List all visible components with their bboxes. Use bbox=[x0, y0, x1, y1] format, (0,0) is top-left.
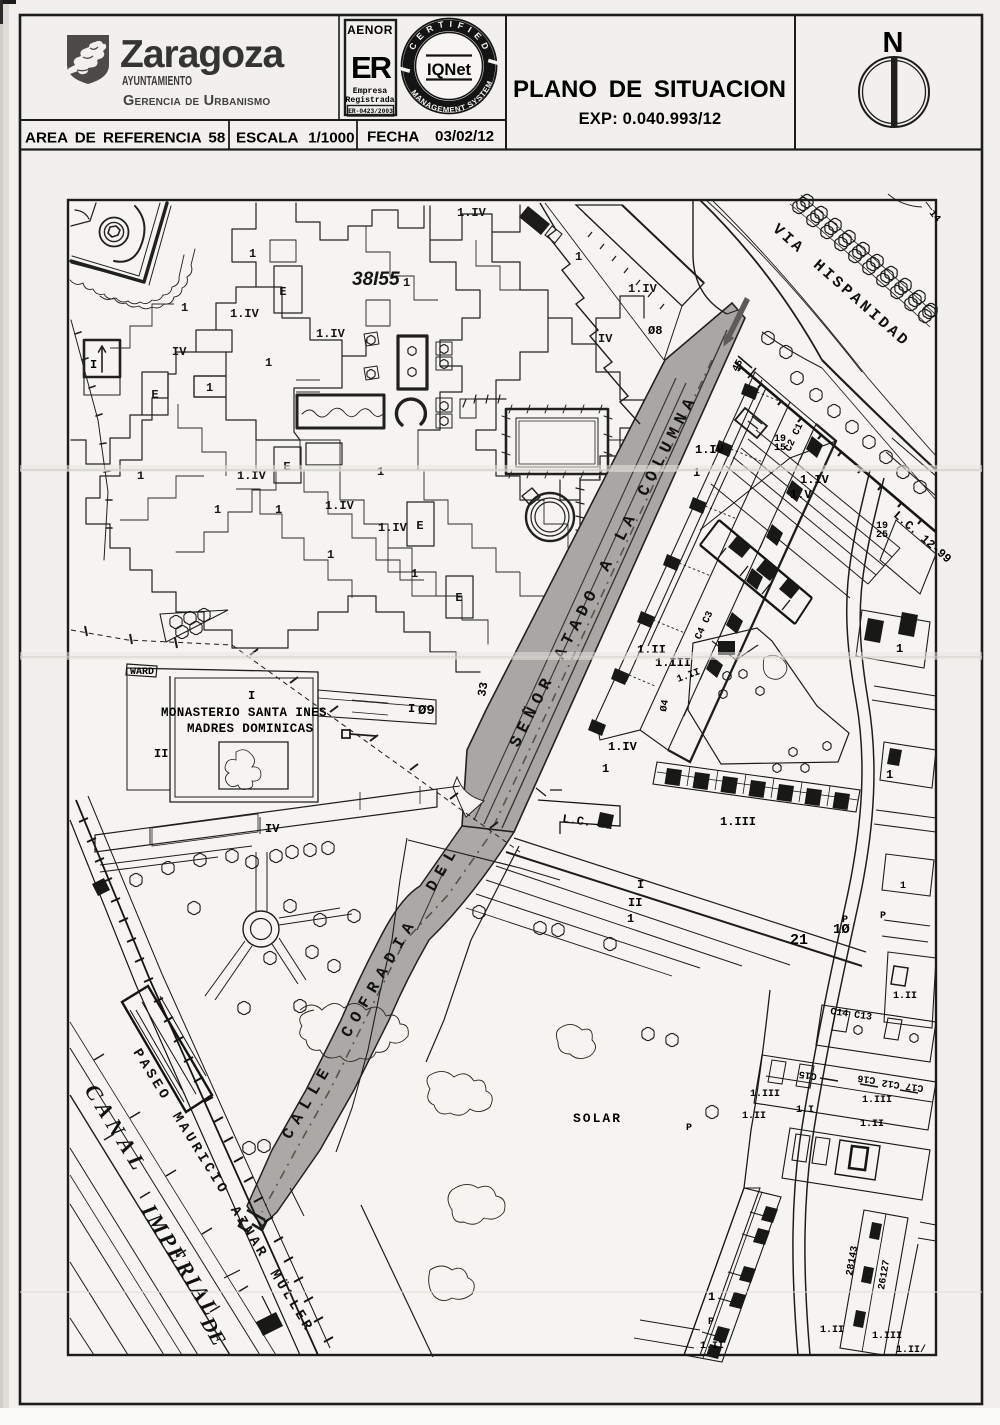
svg-text:AREA DE REFERENCIA 58: AREA DE REFERENCIA 58 bbox=[25, 130, 225, 147]
svg-text:MONASTERIO SANTA INES: MONASTERIO SANTA INES bbox=[161, 706, 327, 720]
svg-text:1.IV: 1.IV bbox=[628, 282, 658, 296]
svg-text:ESCALA 1/1000: ESCALA 1/1000 bbox=[236, 130, 355, 147]
svg-text:P: P bbox=[842, 915, 848, 926]
svg-text:Gerencia de Urbanismo: Gerencia de Urbanismo bbox=[123, 93, 270, 109]
svg-text:IV: IV bbox=[265, 822, 280, 836]
svg-text:IV: IV bbox=[172, 345, 187, 359]
svg-text:IV: IV bbox=[598, 332, 613, 346]
svg-text:N: N bbox=[883, 27, 904, 59]
svg-text:1: 1 bbox=[886, 768, 893, 782]
svg-text:1: 1 bbox=[275, 503, 282, 517]
svg-text:1: 1 bbox=[403, 276, 410, 290]
svg-text:P: P bbox=[686, 1123, 692, 1134]
svg-text:21: 21 bbox=[790, 932, 808, 949]
svg-text:1.III: 1.III bbox=[872, 1331, 902, 1342]
svg-text:1.II: 1.II bbox=[700, 1341, 724, 1352]
svg-text:33: 33 bbox=[475, 681, 491, 698]
svg-text:EXP: 0.040.993/12: EXP: 0.040.993/12 bbox=[579, 110, 722, 128]
svg-text:1: 1 bbox=[900, 881, 906, 892]
svg-text:1.IV: 1.IV bbox=[230, 307, 260, 321]
svg-text:1.II: 1.II bbox=[893, 991, 917, 1002]
svg-text:WARD: WARD bbox=[130, 667, 154, 678]
svg-text:E: E bbox=[151, 388, 158, 402]
svg-text:1.IV: 1.IV bbox=[695, 443, 725, 457]
svg-text:AENOR: AENOR bbox=[347, 23, 393, 37]
svg-text:II: II bbox=[154, 747, 168, 761]
svg-text:1.III: 1.III bbox=[750, 1089, 780, 1100]
svg-text:E: E bbox=[455, 591, 462, 605]
svg-text:Ø8: Ø8 bbox=[648, 324, 662, 338]
svg-text:1: 1 bbox=[627, 912, 634, 926]
svg-text:1: 1 bbox=[602, 762, 609, 776]
svg-text:I: I bbox=[637, 878, 644, 892]
svg-text:03/02/12: 03/02/12 bbox=[435, 128, 494, 145]
svg-text:1: 1 bbox=[181, 301, 188, 315]
svg-text:MADRES DOMINICAS: MADRES DOMINICAS bbox=[187, 722, 314, 736]
svg-text:Ø4: Ø4 bbox=[658, 699, 672, 713]
svg-text:Empresa: Empresa bbox=[353, 87, 387, 96]
svg-text:Registrada: Registrada bbox=[345, 95, 394, 105]
svg-text:E: E bbox=[279, 285, 286, 299]
svg-text:ER-0423/2003: ER-0423/2003 bbox=[348, 108, 393, 115]
svg-text:1: 1 bbox=[265, 356, 272, 370]
svg-text:25: 25 bbox=[876, 530, 888, 541]
svg-text:1.IV: 1.IV bbox=[378, 521, 408, 535]
svg-text:Ø9: Ø9 bbox=[418, 703, 435, 719]
svg-text:1: 1 bbox=[249, 247, 256, 261]
svg-text:1.II: 1.II bbox=[742, 1111, 766, 1122]
svg-text:AYUNTAMIENTO: AYUNTAMIENTO bbox=[122, 74, 192, 88]
svg-text:1.III: 1.III bbox=[720, 815, 756, 829]
svg-text:1.III: 1.III bbox=[862, 1095, 892, 1106]
svg-text:E: E bbox=[416, 519, 423, 533]
svg-text:1: 1 bbox=[327, 548, 334, 562]
svg-text:1.IV: 1.IV bbox=[800, 473, 830, 487]
svg-text:P: P bbox=[880, 911, 886, 922]
svg-text:1.V: 1.V bbox=[790, 488, 812, 502]
svg-text:1.IV: 1.IV bbox=[325, 499, 355, 513]
svg-text:1: 1 bbox=[206, 381, 213, 395]
svg-text:ER: ER bbox=[351, 50, 392, 85]
svg-text:1.I: 1.I bbox=[796, 1105, 814, 1116]
svg-text:1: 1 bbox=[575, 250, 582, 264]
svg-text:I: I bbox=[90, 358, 97, 372]
svg-text:1.II/: 1.II/ bbox=[896, 1344, 926, 1356]
svg-text:1.II: 1.II bbox=[860, 1119, 884, 1130]
svg-text:1.IV: 1.IV bbox=[457, 206, 487, 220]
svg-text:PLANO DE SITUACION: PLANO DE SITUACION bbox=[513, 76, 786, 103]
svg-text:1.IV: 1.IV bbox=[608, 740, 638, 754]
svg-text:Zaragoza: Zaragoza bbox=[120, 33, 285, 76]
svg-text:1: 1 bbox=[411, 567, 418, 581]
svg-text:I: I bbox=[248, 689, 255, 703]
svg-text:15: 15 bbox=[774, 443, 786, 454]
svg-text:II: II bbox=[628, 896, 642, 910]
svg-text:P: P bbox=[708, 1317, 714, 1328]
svg-text:1.IV: 1.IV bbox=[316, 327, 346, 341]
svg-text:I: I bbox=[408, 702, 415, 716]
svg-text:SOLAR: SOLAR bbox=[573, 1111, 622, 1126]
svg-text:IQNet: IQNet bbox=[427, 61, 472, 79]
svg-text:38I55: 38I55 bbox=[352, 269, 400, 290]
svg-text:1: 1 bbox=[214, 503, 221, 517]
svg-text:FECHA: FECHA bbox=[367, 129, 419, 146]
svg-text:1.II: 1.II bbox=[820, 1325, 844, 1336]
